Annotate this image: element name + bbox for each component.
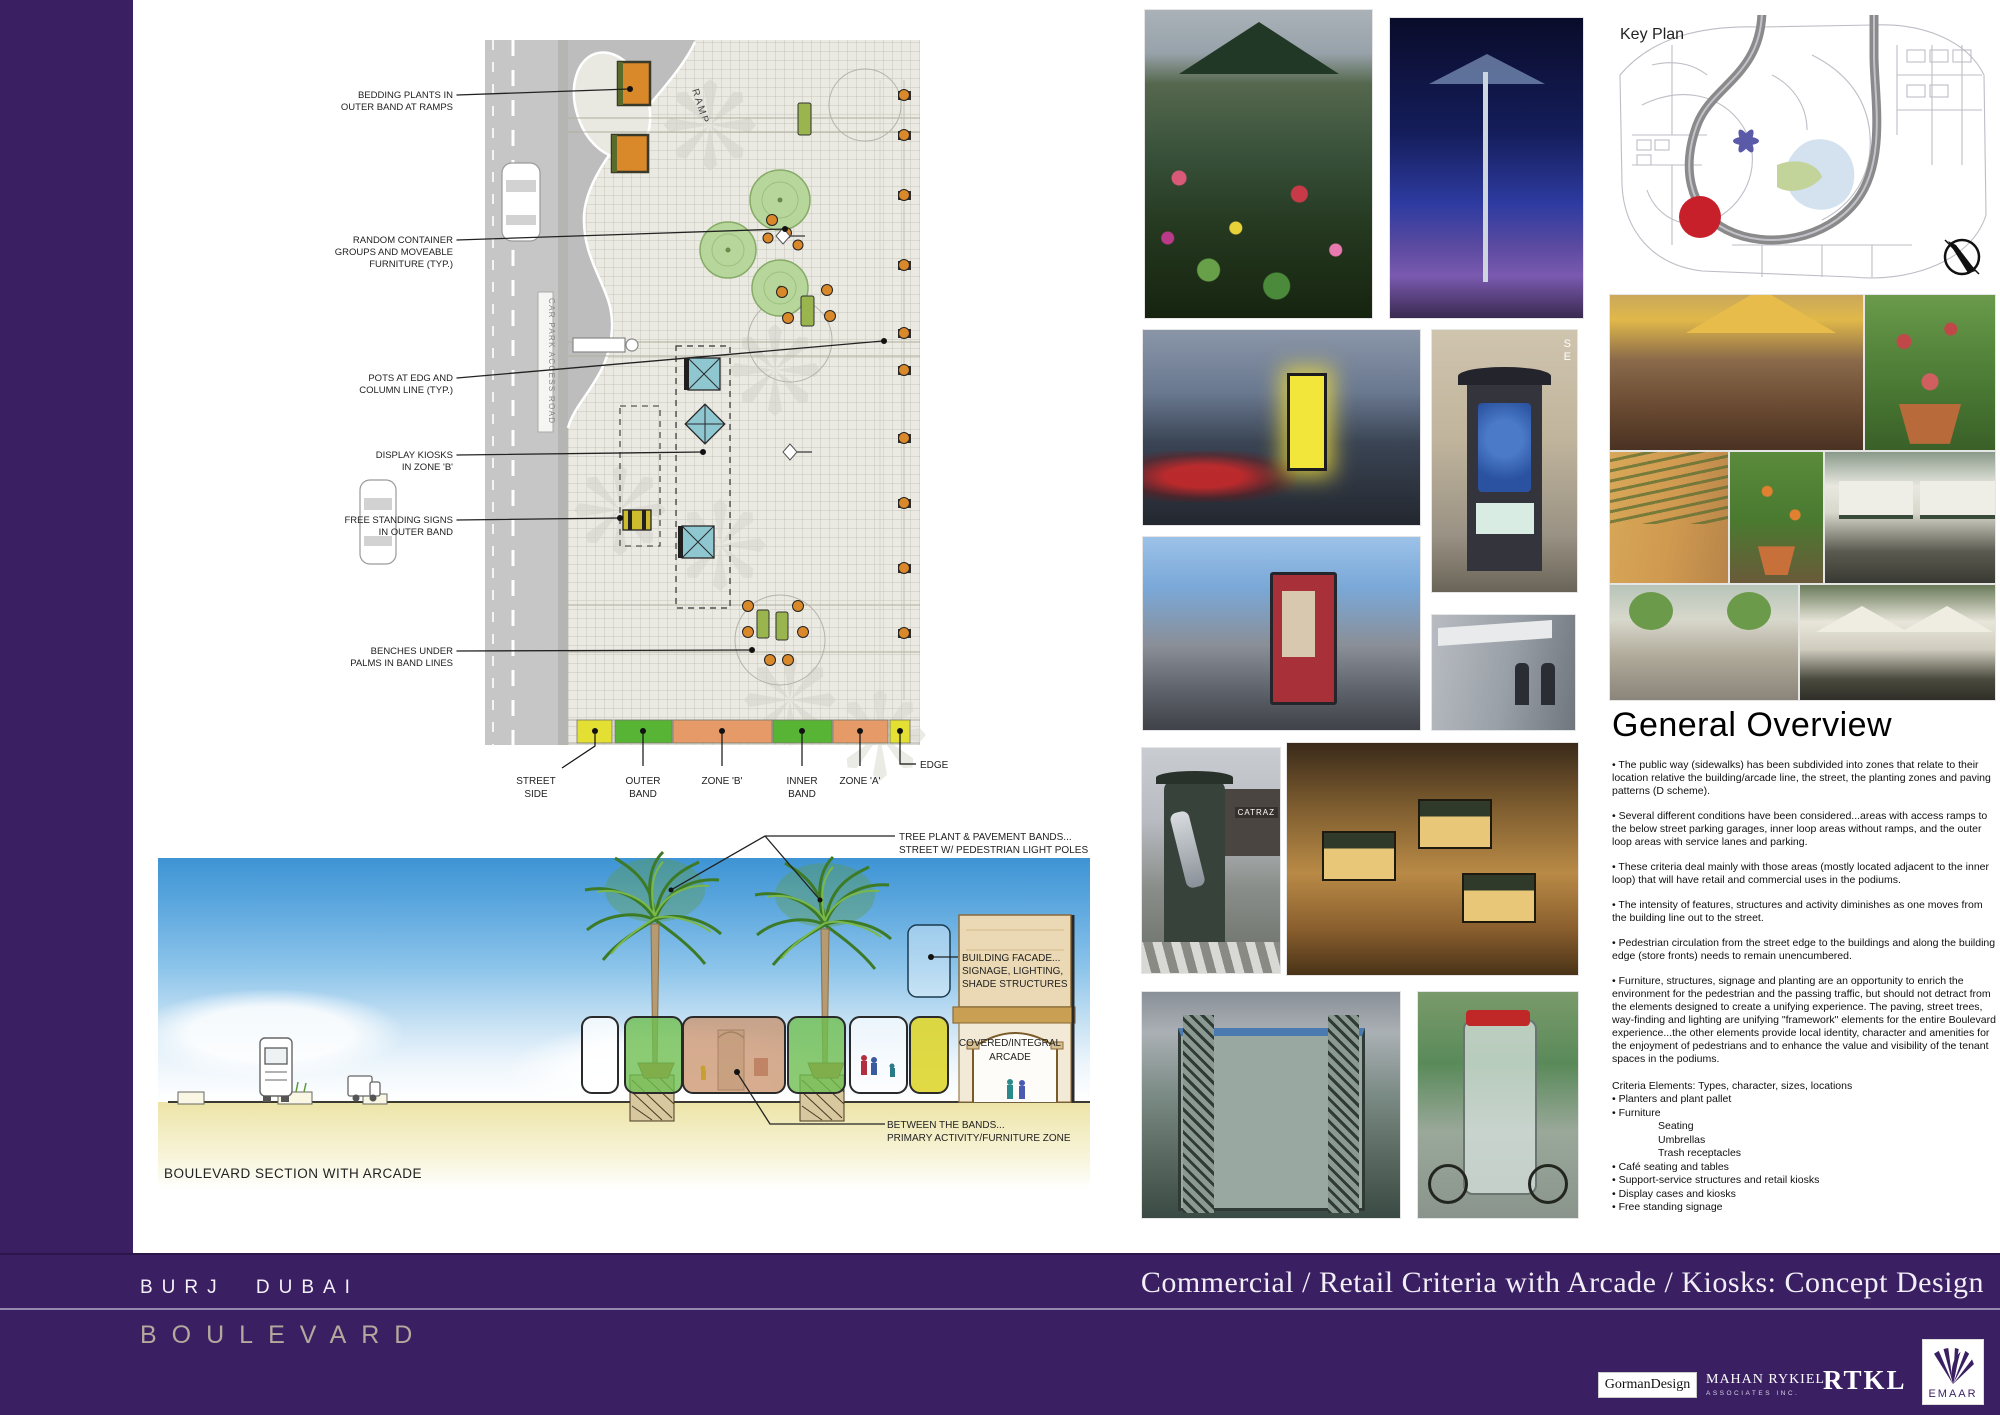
lattice-column [1328,1015,1359,1214]
photo-cafe-crowd-umbrellas [1800,585,1995,700]
emaar-logo: EMAAR [1922,1339,1984,1405]
building-sign: CATRAZ [1235,807,1278,818]
callout-building-facade: BUILDING FACADE...SIGNAGE, LIGHTING,SHAD… [962,953,1068,990]
car-light-streaks [1143,451,1295,502]
criteria-item: • Free standing signage [1612,1201,1996,1215]
rtkl-logo: RTKL [1823,1365,1907,1396]
photo-citrus-pots [1730,452,1823,583]
kiosk-poster [1282,591,1315,657]
photo-night-light-pole [1390,18,1583,318]
overview-heading: General Overview [1612,706,1996,745]
bicycle-wheel [1428,1164,1468,1204]
crosswalk [1142,942,1280,974]
photo-pavilion-cafe-kiosk [1142,992,1400,1218]
criteria-item: • Display cases and kiosks [1612,1188,1996,1202]
palm-shadow [664,79,756,171]
kiosk-roof [1179,22,1339,74]
edge-sign [573,338,638,352]
photo-glass-cylinder-kiosk [1418,992,1578,1218]
kiosk-canopy [1438,620,1552,646]
bicycle-wheel [1528,1164,1568,1204]
street-tree [1727,592,1771,630]
ad-column-cap [1156,771,1233,785]
photo-hanging-olive-wall [1610,452,1728,583]
palm-layout-circles [735,69,901,685]
key-plan: Key Plan [1612,15,1995,295]
blue-poster [1478,403,1530,492]
access-road-label: CAR PARK ACCESS ROAD [538,292,556,432]
criteria-item: • Planters and plant pallet [1612,1093,1996,1107]
overview-paragraph: • These criteria deal mainly with those … [1612,861,1996,887]
overview-paragraph: • Pedestrian circulation from the street… [1612,937,1996,963]
project-name: BURJ DUBAI [140,1277,359,1299]
emaar-palm-icon [1930,1348,1976,1386]
lit-ad-panel [1287,373,1327,471]
criteria-subitem: Seating [1612,1120,1996,1134]
plan-callouts: BEDDING PLANTS INOUTER BAND AT RAMPS RAN… [335,86,887,669]
photo-advertising-column-watch: SE [1432,330,1577,592]
mahan-rykiel-logo: MAHAN RYKIEL ASSOCIATES INC. [1706,1372,1825,1397]
column-cap [1458,367,1551,385]
flower-display [1145,118,1372,318]
presentation-board: RAMP CAR PARK ACCESS ROAD [0,0,2000,1415]
bus-sketch [260,1038,292,1102]
photo-cafe-umbrella-seating [1610,295,1863,450]
legend-zone-b: ZONE 'B' [701,776,742,787]
callout-between-bands: BETWEEN THE BANDS...PRIMARY ACTIVITY/FUR… [887,1120,1071,1144]
free-standing-sign [620,406,660,546]
glass-cylinder [1463,1019,1537,1195]
overview-paragraph: • The intensity of features, structures … [1612,899,1996,925]
palm-shadow [729,324,821,416]
section-title: BOULEVARD SECTION WITH ARCADE [164,1166,422,1181]
photo-flowering-planter [1865,295,1995,450]
boulevard-plan-drawing: RAMP CAR PARK ACCESS ROAD [320,40,980,830]
photo-metal-news-kiosk [1432,615,1575,730]
photo-street-dusk-ad-column [1143,330,1420,525]
legend-street-side: STREETSIDE [516,776,555,800]
arcade-building [953,915,1075,1102]
white-umbrella [1816,606,1908,632]
boulevard-section-drawing: TREE PLANT & PAVEMENT BANDS...STREET W/ … [158,820,1100,1190]
legend-edge: EDGE [920,760,949,771]
overview-paragraph: • Furniture, structures, signage and pla… [1612,975,1996,1066]
sheet-title: Commercial / Retail Criteria with Arcade… [1141,1266,1984,1300]
site-location-marker [1679,196,1721,238]
photo-street-red-display-kiosk [1143,537,1420,730]
red-cap [1466,1010,1530,1026]
legend-inner-band: INNERBAND [786,776,817,800]
photo-flower-kiosk [1145,10,1372,318]
stall-canopy [1920,481,1995,519]
footer-divider [0,1308,2000,1310]
terracotta-pot [1758,546,1795,575]
criteria-subitem: Umbrellas [1612,1134,1996,1148]
retail-kiosk [1322,831,1396,881]
pedestrian [1541,663,1555,705]
car-icon [502,163,540,241]
gorman-design-logo: GormanDesign [1598,1372,1697,1398]
criteria-item: • Café seating and tables [1612,1161,1996,1175]
pole [1483,72,1488,282]
criteria-heading: Criteria Elements: Types, character, siz… [1612,1080,1996,1093]
project-subtitle: BOULEVARD [140,1321,427,1350]
legend-zone-a: ZONE 'A' [839,776,880,787]
callout-tree-bands: TREE PLANT & PAVEMENT BANDS...STREET W/ … [899,832,1088,856]
light-band [1476,503,1534,534]
callout-pots: POTS AT EDG ANDCOLUMN LINE (TYP.) [359,373,453,396]
legend-outer-band: OUTERBAND [626,776,661,800]
svg-text:CAR PARK ACCESS ROAD: CAR PARK ACCESS ROAD [547,298,556,424]
criteria-item: • Support-service structures and retail … [1612,1174,1996,1188]
street-tree [1629,592,1673,630]
criteria-subitem: Trash receptacles [1612,1147,1996,1161]
criteria-item: • Furniture [1612,1107,1996,1121]
callout-benches: BENCHES UNDERPALMS IN BAND LINES [350,646,453,669]
general-overview-panel: General Overview • The public way (sidew… [1612,706,1996,1215]
callout-random-containers: RANDOM CONTAINERGROUPS AND MOVEABLEFURNI… [335,235,453,270]
retail-kiosk [1418,799,1492,849]
photo-plaza-promenade [1610,585,1798,700]
lattice-column [1183,1015,1214,1214]
callout-bedding-plants: BEDDING PLANTS INOUTER BAND AT RAMPS [341,90,453,113]
white-umbrella [1901,606,1993,632]
photo-market-stalls [1825,452,1995,583]
facade-zone-box [908,925,958,997]
photo-green-ad-column: CATRAZ [1142,748,1280,973]
footer-title-block: BURJ DUBAI Commercial / Retail Criteria … [0,1253,2000,1415]
olive-branches [1610,452,1728,524]
key-plan-title: Key Plan [1620,26,1684,43]
left-purple-bar [0,0,133,1415]
terracotta-pot [1899,404,1961,444]
photo-interior-retail-kiosks [1287,743,1578,975]
pedestrian [1515,663,1529,705]
yellow-umbrella [1686,295,1836,333]
building-signage: SE [1564,338,1571,364]
background-building [1217,789,1280,857]
callout-display-kiosks: DISPLAY KIOSKSIN ZONE 'B' [376,450,453,473]
stall-canopy [1839,481,1914,519]
retail-kiosk [1462,873,1536,923]
overview-paragraph: • Several different conditions have been… [1612,810,1996,849]
section-zone-blocks [582,1017,948,1093]
overview-paragraph: • The public way (sidewalks) has been su… [1612,759,1996,798]
